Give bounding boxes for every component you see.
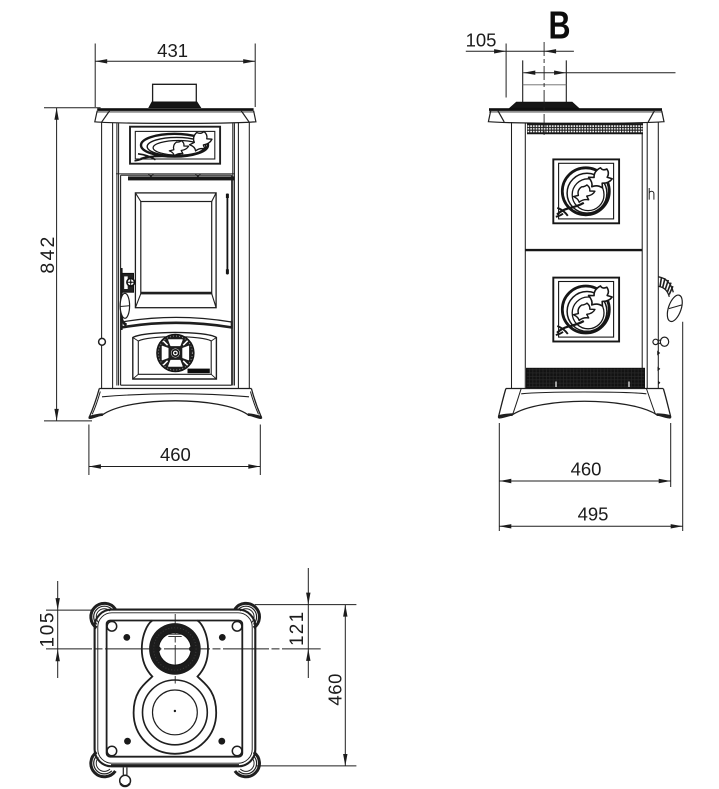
- svg-text:460: 460: [160, 444, 191, 465]
- svg-text:121: 121: [287, 611, 308, 646]
- svg-text:460: 460: [325, 673, 346, 706]
- svg-text:495: 495: [578, 504, 609, 525]
- svg-text:105: 105: [466, 29, 497, 50]
- svg-text:B: B: [549, 5, 571, 48]
- svg-text:431: 431: [157, 40, 188, 61]
- svg-text:105: 105: [37, 611, 58, 648]
- svg-text:460: 460: [571, 459, 602, 480]
- svg-text:842: 842: [37, 234, 59, 273]
